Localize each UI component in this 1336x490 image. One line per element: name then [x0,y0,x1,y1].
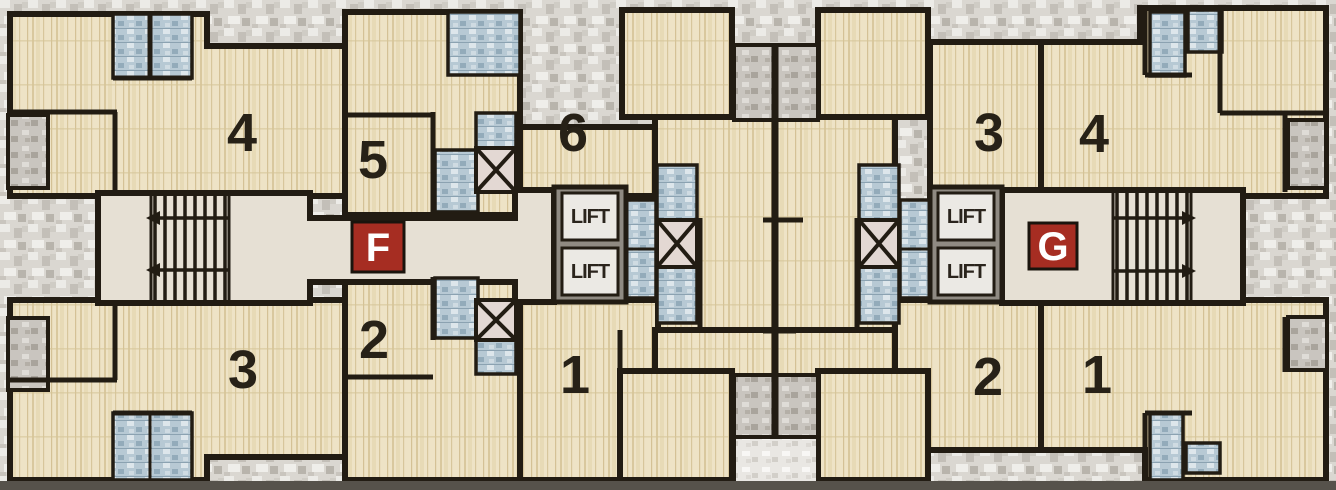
unit-label-g-3: 3 [974,103,1004,163]
bath-box-g-unit4 [1150,12,1185,76]
unit-label-f-5: 5 [358,130,388,190]
badge-g-label: G [1037,225,1068,269]
room-block-f-bottom-center [620,371,732,480]
window-box-f-bottomleft [113,413,192,480]
shaft-right-lower [1288,317,1327,370]
duct-g-core [859,220,899,267]
lift-label: LIFT [947,206,986,228]
unit-label-f-1: 1 [560,345,590,405]
window-box-f-unit5-top [448,12,520,75]
unit-label-f-4: 4 [227,103,257,163]
badge-g: G [1029,223,1077,269]
floor-plan-canvas: LIFT LIFT LIFT LIFT F G 4 5 6 3 2 1 3 4 … [0,0,1336,490]
bottom-section-band [0,481,1336,490]
lift-label: LIFT [571,206,610,228]
lift-label: LIFT [947,261,986,283]
recess-bottom-center [734,437,818,483]
window-box-g-duct-lower [859,267,899,323]
room-block-g-bottom-center [818,371,928,480]
bath-box-g-unit4-small [1188,10,1222,52]
window-box-f-duct-upper [657,165,697,220]
unit-label-g-2: 2 [973,347,1003,407]
shaft-right-upper [1288,120,1326,188]
bath-box-f-unit2-small [476,340,516,374]
unit-label-f-6: 6 [558,103,588,163]
floor-plan: LIFT LIFT LIFT LIFT F G 4 5 6 3 2 1 3 4 … [0,0,1336,490]
shaft-left-upper [8,115,48,188]
unit-label-f-3: 3 [228,340,258,400]
lift-core-f: LIFT LIFT [554,187,626,302]
window-box-f-duct-lower [657,267,697,323]
duct-f-core [657,220,697,267]
unit-label-f-2: 2 [359,310,389,370]
lift-label: LIFT [571,261,610,283]
badge-f: F [352,222,404,272]
duct-f-unit5 [476,148,516,192]
room-block-f-top-center [622,10,732,117]
duct-f-unit2 [476,300,516,340]
bath-box-f-unit5 [435,150,478,212]
badge-f-label: F [366,226,390,270]
bath-box-f-unit2 [435,278,478,338]
window-box-g-duct-upper [859,165,899,220]
room-block-g-top-center [818,10,928,117]
bath-box-g-unit1 [1150,413,1183,480]
bath-box-g-unit1-small [1186,443,1220,473]
unit-label-g-4: 4 [1079,104,1109,164]
lift-core-g: LIFT LIFT [930,187,1002,302]
unit-label-g-1: 1 [1082,345,1112,405]
bath-box-f-unit5-small [476,113,516,150]
